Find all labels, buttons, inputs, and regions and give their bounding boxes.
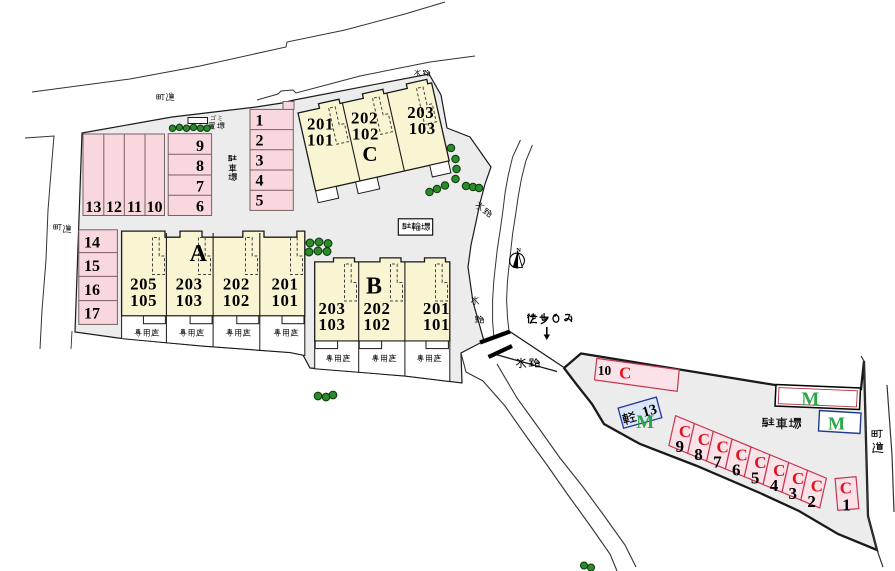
- svg-text:12: 12: [106, 199, 122, 216]
- svg-text:103: 103: [409, 119, 436, 138]
- svg-text:1: 1: [256, 113, 264, 130]
- svg-text:8: 8: [196, 158, 204, 175]
- svg-text:2: 2: [807, 492, 816, 511]
- svg-text:15: 15: [84, 258, 100, 275]
- svg-text:101: 101: [272, 291, 299, 310]
- svg-text:M: M: [801, 389, 819, 410]
- svg-text:5: 5: [256, 193, 264, 210]
- svg-text:10: 10: [147, 199, 163, 216]
- svg-text:9: 9: [196, 138, 204, 155]
- svg-text:3: 3: [789, 484, 798, 503]
- svg-text:A: A: [190, 241, 208, 267]
- svg-text:6: 6: [732, 461, 741, 480]
- svg-text:B: B: [366, 273, 382, 299]
- svg-text:C: C: [840, 478, 852, 497]
- svg-text:4: 4: [256, 173, 264, 190]
- svg-text:N: N: [516, 247, 521, 254]
- svg-text:105: 105: [130, 291, 157, 310]
- svg-text:7: 7: [713, 453, 722, 472]
- svg-text:8: 8: [694, 445, 703, 464]
- svg-text:1: 1: [842, 496, 851, 515]
- svg-text:13: 13: [85, 199, 101, 216]
- svg-text:C: C: [362, 142, 377, 166]
- svg-text:14: 14: [84, 235, 100, 252]
- svg-text:102: 102: [223, 291, 250, 310]
- svg-text:103: 103: [176, 291, 203, 310]
- svg-text:102: 102: [364, 315, 391, 334]
- svg-text:5: 5: [751, 468, 760, 487]
- svg-text:4: 4: [770, 476, 779, 495]
- svg-text:16: 16: [84, 282, 100, 299]
- svg-text:11: 11: [127, 199, 142, 216]
- svg-text:3: 3: [256, 153, 264, 170]
- svg-text:2: 2: [256, 133, 264, 150]
- svg-text:102: 102: [352, 125, 379, 144]
- svg-text:M: M: [828, 413, 845, 433]
- svg-text:101: 101: [423, 315, 450, 334]
- svg-text:M: M: [636, 412, 654, 433]
- svg-text:17: 17: [84, 306, 100, 323]
- svg-text:103: 103: [319, 315, 346, 334]
- svg-text:101: 101: [307, 130, 334, 149]
- svg-text:C: C: [619, 364, 631, 383]
- svg-text:9: 9: [675, 437, 684, 456]
- svg-text:7: 7: [196, 179, 204, 196]
- svg-text:10: 10: [598, 363, 612, 378]
- svg-text:6: 6: [196, 199, 204, 216]
